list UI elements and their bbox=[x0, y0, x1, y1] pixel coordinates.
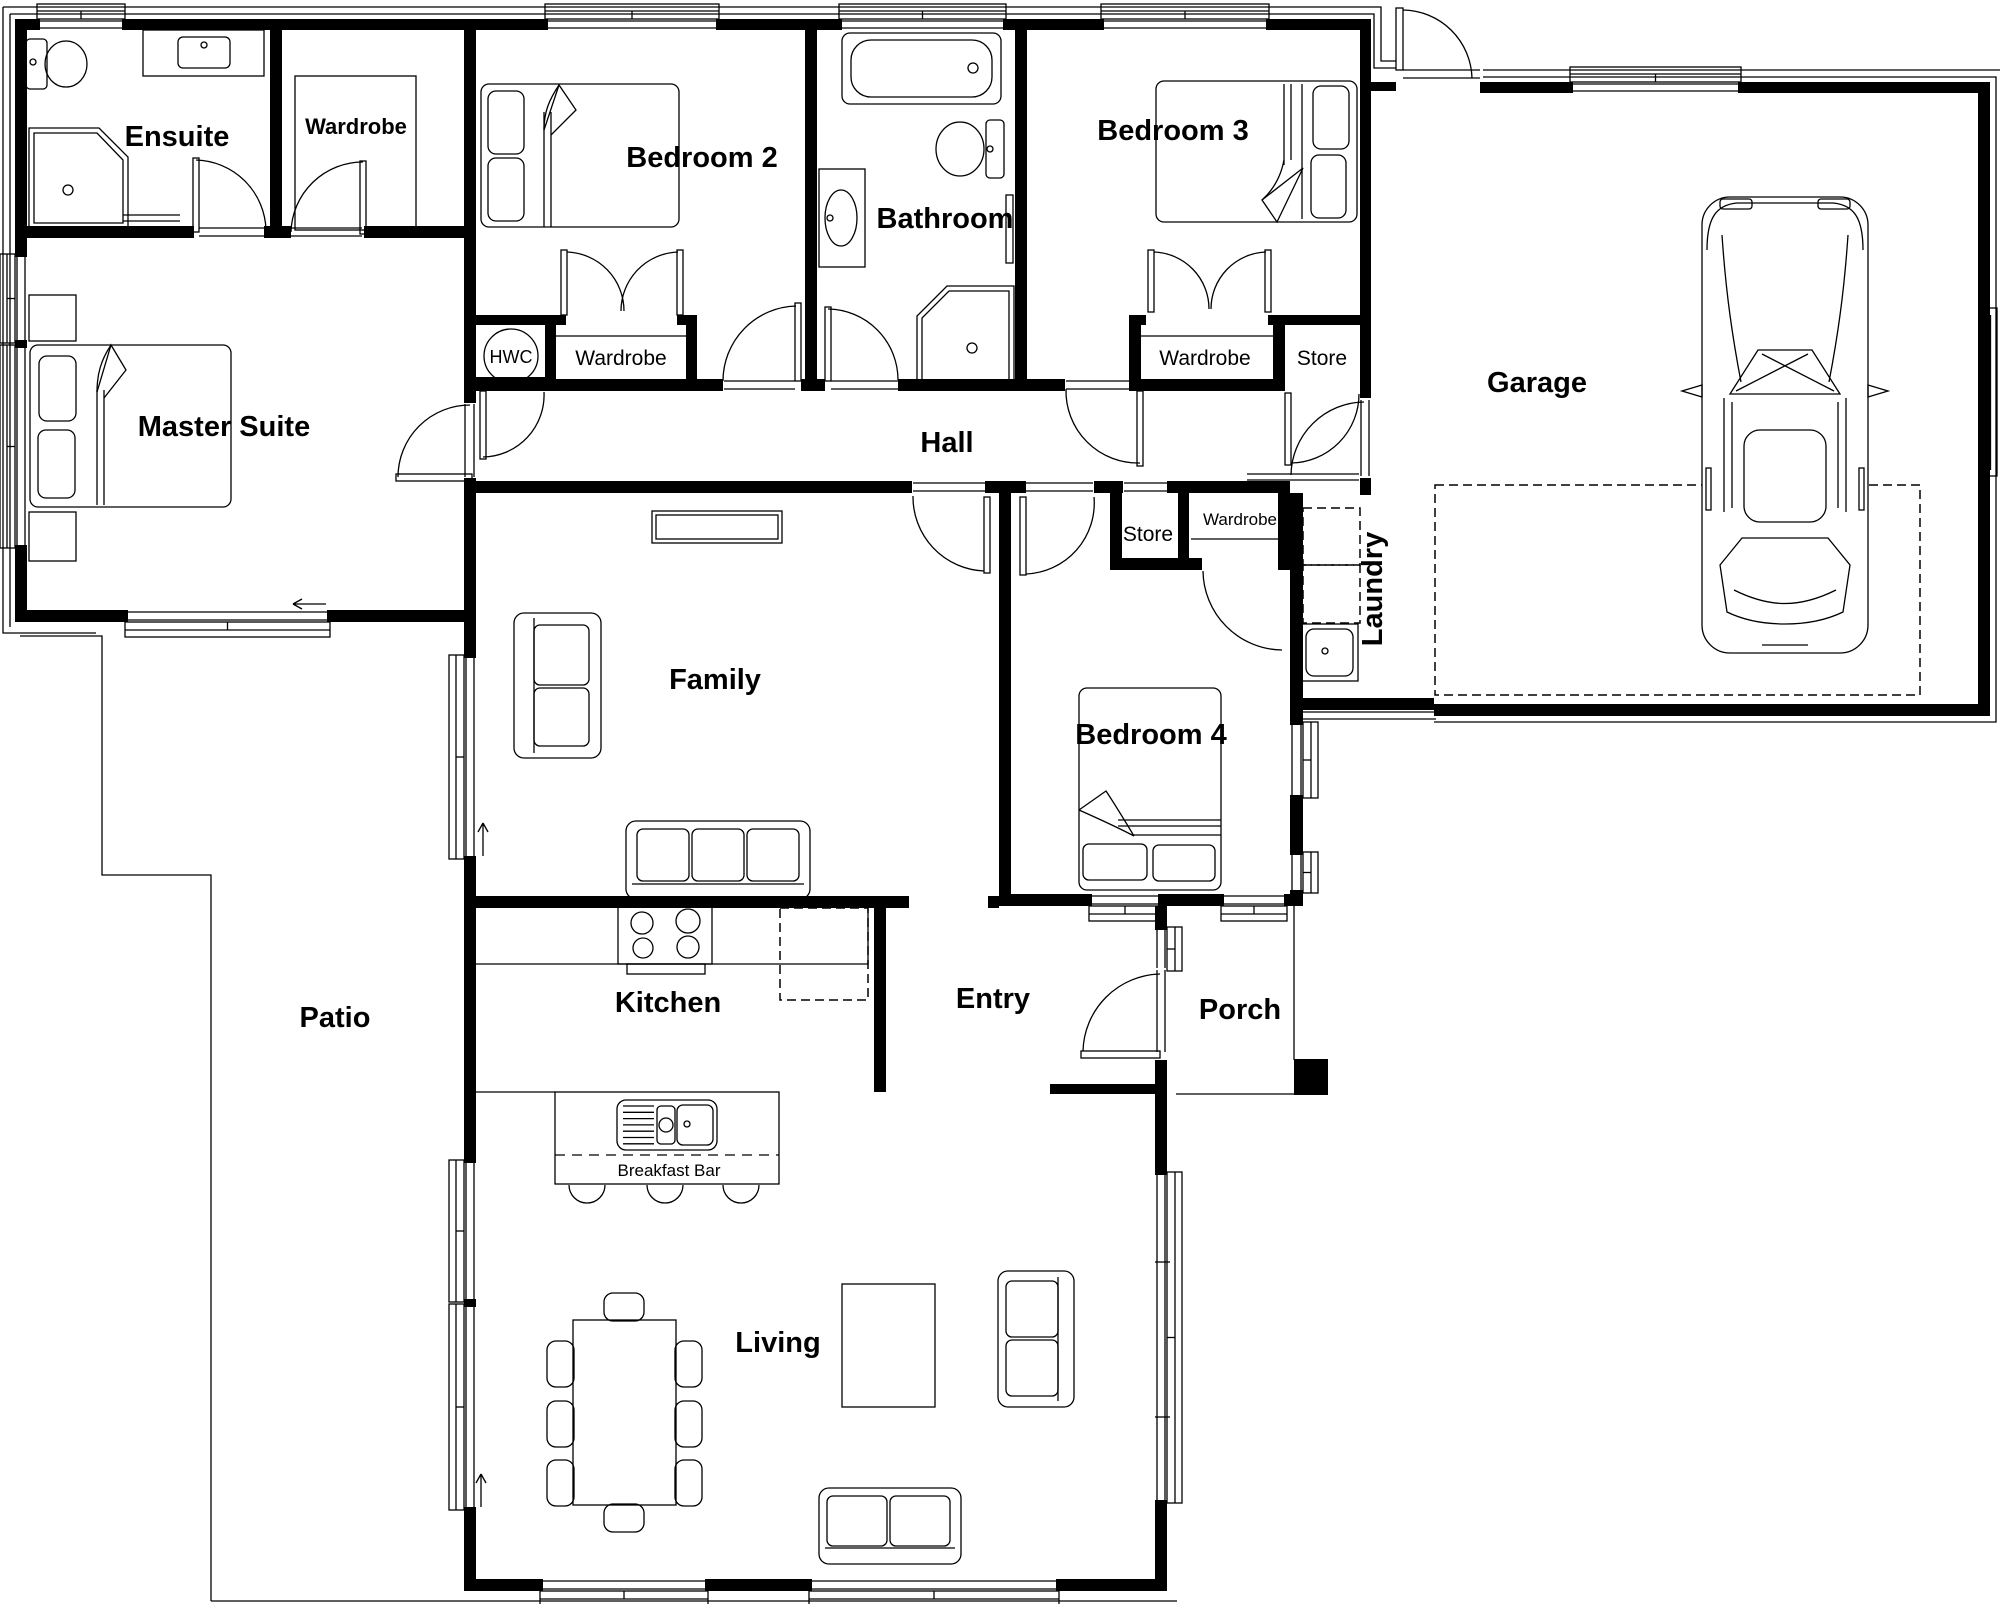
svg-text:Laundry: Laundry bbox=[1357, 532, 1389, 646]
svg-text:Wardrobe: Wardrobe bbox=[575, 347, 666, 370]
svg-text:Bedroom 4: Bedroom 4 bbox=[1075, 719, 1226, 751]
svg-text:Living: Living bbox=[735, 1327, 820, 1359]
svg-text:Entry: Entry bbox=[956, 983, 1030, 1015]
svg-text:Store: Store bbox=[1297, 347, 1347, 370]
svg-text:Family: Family bbox=[669, 664, 761, 696]
svg-text:Bathroom: Bathroom bbox=[877, 203, 1014, 235]
svg-text:Garage: Garage bbox=[1487, 367, 1587, 399]
svg-text:Hall: Hall bbox=[920, 427, 973, 459]
svg-text:Wardrobe: Wardrobe bbox=[305, 114, 407, 139]
svg-text:Ensuite: Ensuite bbox=[125, 121, 230, 153]
svg-text:HWC: HWC bbox=[490, 347, 533, 367]
svg-text:Store: Store bbox=[1123, 523, 1173, 546]
svg-text:Breakfast Bar: Breakfast Bar bbox=[618, 1161, 721, 1180]
svg-text:Bedroom 2: Bedroom 2 bbox=[626, 142, 777, 174]
svg-text:Bedroom 3: Bedroom 3 bbox=[1097, 115, 1248, 147]
svg-text:Wardrobe: Wardrobe bbox=[1203, 510, 1277, 529]
svg-text:Wardrobe: Wardrobe bbox=[1159, 347, 1250, 370]
svg-text:Porch: Porch bbox=[1199, 994, 1281, 1026]
svg-text:Patio: Patio bbox=[300, 1002, 371, 1034]
svg-text:Kitchen: Kitchen bbox=[615, 987, 721, 1019]
svg-text:Master Suite: Master Suite bbox=[138, 411, 310, 443]
